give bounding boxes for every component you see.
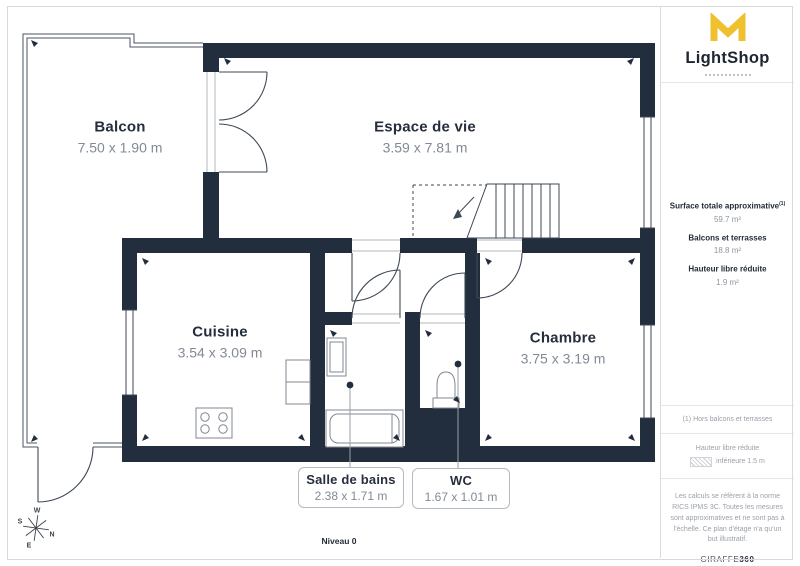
room-name: Espace de vie [374,119,476,136]
room-label-balcon: Balcon 7.50 x 1.90 m [78,119,163,156]
stove [196,408,232,438]
measurement-label: Hauteur libre réduite [688,265,766,274]
floorplan-canvas: Balcon 7.50 x 1.90 m Espace de vie 3.59 … [0,0,660,566]
bathtub [326,410,403,447]
measurement-value: 18.8 m² [688,246,766,255]
bathroom-door [352,270,400,318]
measurement-row: Hauteur libre réduite 1.9 m² [688,264,766,287]
floorplan-page: Balcon 7.50 x 1.90 m Espace de vie 3.59 … [0,0,800,566]
info-sidebar: LightShop Surface totale approximative(1… [660,7,794,558]
windows [122,117,655,418]
bathroom-sink [327,338,346,376]
callout-wc: WC 1.67 x 1.01 m [412,468,510,509]
compass-rose [23,515,49,541]
wc-door [420,273,465,318]
level-label: Niveau 0 [322,536,357,546]
measurement-label: Balcons et terrasses [688,233,766,242]
compass-west: W [34,508,41,515]
room-dimensions: 3.75 x 3.19 m [521,351,606,367]
reduced-height-hatch-swatch [690,457,712,467]
compass-east: E [27,543,32,550]
room-label-chambre: Chambre 3.75 x 3.19 m [521,330,606,367]
room-name: Chambre [521,330,606,347]
callout-salle-de-bains: Salle de bains 2.38 x 1.71 m [298,467,404,508]
legend: Hauteur libre réduite inférieure 1.5 m [661,433,794,478]
room-label-cuisine: Cuisine 3.54 x 3.09 m [178,324,263,361]
stairs [413,184,559,238]
disclaimer-section: Les calculs se réfèrent à la norme RICS … [661,478,794,564]
callout-dimensions: 1.67 x 1.01 m [419,490,503,504]
toilet [433,372,459,408]
room-dimensions: 7.50 x 1.90 m [78,140,163,156]
measurement-row: Surface totale approximative(1) 59.7 m² [670,201,786,224]
measurements-panel: Surface totale approximative(1) 59.7 m² … [661,83,794,405]
callout-dimensions: 2.38 x 1.71 m [305,489,397,503]
callout-name: WC [419,473,503,488]
logo-wordmark: LightShop [661,49,794,68]
measurement-value: 1.9 m² [688,278,766,287]
compass-south: S [18,519,23,526]
measurement-footnote-ref: (1) [779,201,785,207]
room-dimensions: 3.54 x 3.09 m [178,345,263,361]
giraffe360-brand-suffix: 360 [739,555,754,564]
legend-item-text: inférieure 1.5 m [716,458,765,465]
kitchen-sink-unit [286,360,310,404]
legend-title: Hauteur libre réduite [696,445,759,452]
walls [122,43,655,462]
room-label-espace-de-vie: Espace de vie 3.59 x 7.81 m [374,119,476,156]
giraffe360-brand: GIRAFFE [700,555,739,564]
room-dimensions: 3.59 x 7.81 m [374,140,476,156]
compass-north: N [49,532,54,539]
footnote: (1) Hors balcons et terrasses [661,405,794,433]
measurement-row: Balcons et terrasses 18.8 m² [688,233,766,256]
measurement-label: Surface totale approximative [670,202,779,211]
balcony-gate-door [38,447,93,502]
balcony-french-doors [219,72,267,172]
measurement-value: 59.7 m² [670,215,786,224]
logo-tagline [705,71,751,76]
disclaimer-text: Les calculs se réfèrent à la norme RICS … [670,492,785,546]
lightshop-logo-icon [708,13,748,43]
bedroom-door [477,253,522,298]
hall-door [352,253,400,301]
callout-name: Salle de bains [305,472,397,487]
room-name: Balcon [78,119,163,136]
footnote-text: (1) Hors balcons et terrasses [683,416,773,423]
logo: LightShop [661,13,794,76]
room-name: Cuisine [178,324,263,341]
